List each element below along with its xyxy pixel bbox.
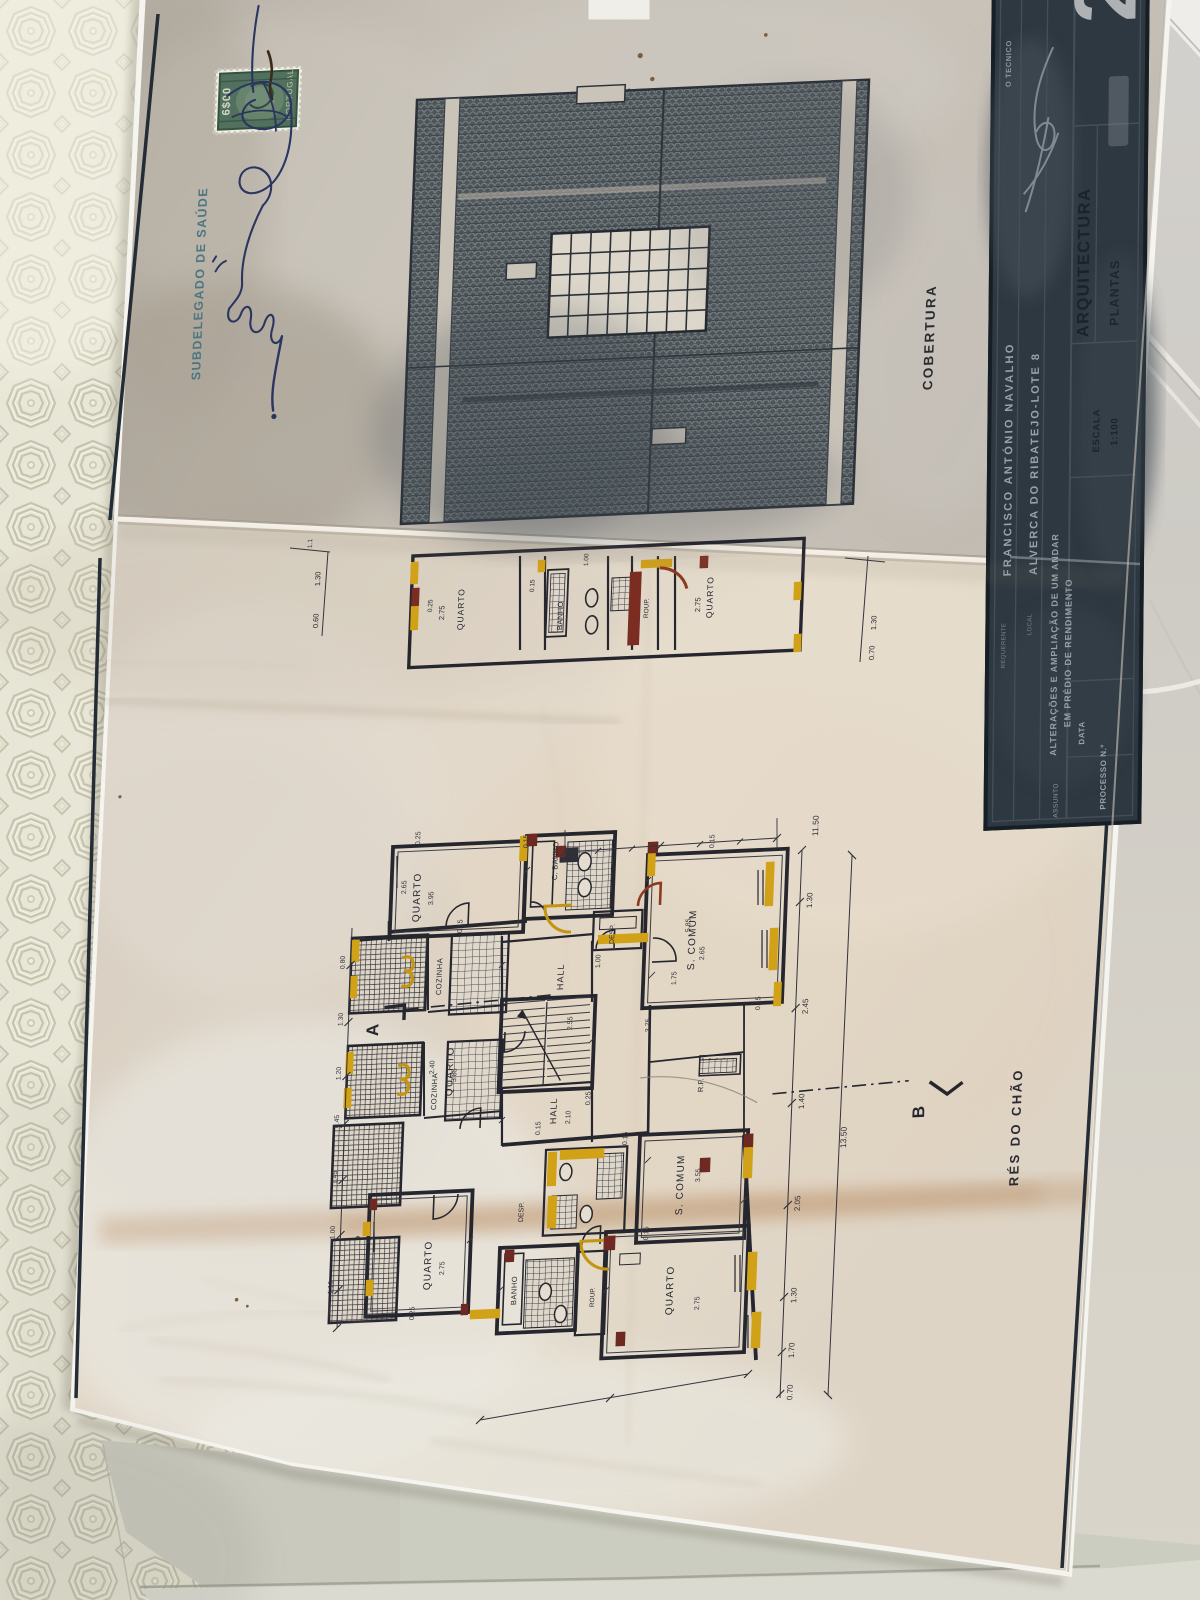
svg-text:COZINHA: COZINHA bbox=[434, 958, 444, 996]
svg-text:1.75: 1.75 bbox=[671, 971, 679, 985]
svg-text:3.75: 3.75 bbox=[645, 1018, 653, 1032]
svg-text:ASSUNTO: ASSUNTO bbox=[1052, 783, 1059, 818]
svg-text:1.40: 1.40 bbox=[797, 1093, 807, 1110]
svg-text:DESP.: DESP. bbox=[609, 924, 617, 944]
svg-text:0.15: 0.15 bbox=[529, 579, 536, 592]
svg-text:3.95: 3.95 bbox=[428, 891, 436, 905]
svg-text:1:100: 1:100 bbox=[1109, 417, 1120, 446]
svg-text:1.30: 1.30 bbox=[805, 892, 815, 909]
svg-text:2.10: 2.10 bbox=[565, 1110, 573, 1124]
svg-text:1.30: 1.30 bbox=[789, 1287, 799, 1304]
svg-text:0.15: 0.15 bbox=[709, 834, 717, 848]
svg-text:2.75: 2.75 bbox=[437, 605, 447, 620]
svg-text:2: 2 bbox=[1055, 0, 1154, 25]
svg-text:11.50: 11.50 bbox=[810, 815, 821, 836]
svg-text:1.30: 1.30 bbox=[869, 615, 879, 630]
svg-text:1.00: 1.00 bbox=[330, 1225, 338, 1239]
svg-text:3.55: 3.55 bbox=[695, 1168, 703, 1182]
svg-text:BANHO: BANHO bbox=[555, 601, 565, 631]
svg-text:DATA: DATA bbox=[1077, 721, 1086, 745]
svg-text:5.85: 5.85 bbox=[685, 918, 693, 932]
svg-text:1.00: 1.00 bbox=[595, 954, 603, 968]
svg-text:2.45: 2.45 bbox=[801, 998, 811, 1015]
svg-text:QUARTO: QUARTO bbox=[664, 1265, 677, 1315]
svg-text:0.15: 0.15 bbox=[622, 1131, 630, 1145]
svg-text:ARQUITECTURA: ARQUITECTURA bbox=[1074, 187, 1094, 338]
svg-text:0.70: 0.70 bbox=[785, 1384, 795, 1401]
svg-text:A: A bbox=[363, 1024, 382, 1037]
svg-text:FRANCISCO ANTÓNIO NAVALHO: FRANCISCO ANTÓNIO NAVALHO bbox=[1001, 342, 1016, 577]
svg-text:0.15: 0.15 bbox=[643, 1226, 651, 1240]
svg-text:2.05: 2.05 bbox=[793, 1195, 803, 1212]
svg-text:0.15: 0.15 bbox=[457, 919, 465, 933]
svg-text:0.45: 0.45 bbox=[334, 1114, 342, 1128]
svg-text:HALL: HALL bbox=[555, 963, 566, 990]
svg-text:ROUP.: ROUP. bbox=[589, 1287, 597, 1307]
svg-text:C. BANHO: C. BANHO bbox=[550, 841, 560, 880]
svg-text:13.50: 13.50 bbox=[838, 1126, 849, 1148]
svg-text:ESCALA: ESCALA bbox=[1091, 408, 1102, 452]
svg-text:0.25: 0.25 bbox=[415, 831, 423, 845]
svg-text:0.15: 0.15 bbox=[523, 834, 531, 848]
svg-text:1.20: 1.20 bbox=[335, 1066, 343, 1080]
svg-text:QUARTO: QUARTO bbox=[411, 872, 424, 922]
svg-text:BANHO: BANHO bbox=[509, 1276, 519, 1306]
svg-text:QUARTO: QUARTO bbox=[422, 1240, 435, 1290]
svg-text:0.25: 0.25 bbox=[427, 599, 434, 612]
svg-text:6$00: 6$00 bbox=[220, 87, 233, 116]
svg-text:1.30: 1.30 bbox=[338, 1012, 346, 1026]
svg-text:ROUP.: ROUP. bbox=[643, 598, 651, 618]
svg-text:REQUERENTE: REQUERENTE bbox=[1001, 623, 1007, 669]
svg-text:PLANTAS: PLANTAS bbox=[1107, 259, 1122, 326]
svg-text:S. COMUM: S. COMUM bbox=[686, 909, 699, 970]
svg-text:1.45: 1.45 bbox=[332, 1170, 340, 1184]
svg-text:1.10: 1.10 bbox=[327, 1280, 335, 1294]
svg-text:3.85: 3.85 bbox=[451, 1068, 459, 1082]
svg-text:2.40: 2.40 bbox=[429, 1060, 437, 1074]
svg-text:2.75: 2.75 bbox=[694, 1296, 702, 1310]
svg-text:QUARTO: QUARTO bbox=[455, 588, 467, 630]
svg-text:0.15: 0.15 bbox=[755, 996, 763, 1010]
svg-text:DESP.: DESP. bbox=[518, 1202, 526, 1222]
svg-text:0.25: 0.25 bbox=[409, 1306, 417, 1320]
svg-text:0.60: 0.60 bbox=[311, 613, 321, 628]
svg-text:B: B bbox=[909, 1106, 928, 1119]
svg-text:0.15: 0.15 bbox=[535, 1121, 543, 1135]
svg-text:1.70: 1.70 bbox=[787, 1342, 797, 1359]
svg-text:O TECNICO: O TECNICO bbox=[1004, 40, 1013, 87]
svg-text:S. COMUM: S. COMUM bbox=[674, 1154, 687, 1215]
svg-text:2.75: 2.75 bbox=[693, 597, 703, 612]
svg-text:PROCESSO N.º: PROCESSO N.º bbox=[1099, 744, 1109, 810]
svg-text:EM PRÉDIO DE RENDIMENTO: EM PRÉDIO DE RENDIMENTO bbox=[1061, 578, 1073, 727]
svg-text:2.55: 2.55 bbox=[567, 1016, 575, 1030]
svg-text:0.70: 0.70 bbox=[867, 645, 877, 660]
svg-text:1.30: 1.30 bbox=[313, 571, 323, 586]
svg-text:2.75: 2.75 bbox=[439, 1261, 447, 1275]
svg-text:2.65: 2.65 bbox=[401, 880, 409, 894]
svg-text:LOCAL: LOCAL bbox=[1027, 613, 1033, 635]
svg-text:ALVERCA DO RIBATEJO-LOTE 8: ALVERCA DO RIBATEJO-LOTE 8 bbox=[1028, 352, 1042, 576]
svg-text:0.25: 0.25 bbox=[585, 1091, 593, 1105]
svg-text:HALL: HALL bbox=[548, 1097, 559, 1124]
svg-text:QUARTO: QUARTO bbox=[704, 576, 716, 618]
svg-text:COZINHA: COZINHA bbox=[429, 1073, 439, 1111]
svg-text:2.65: 2.65 bbox=[699, 946, 707, 960]
svg-text:0.80: 0.80 bbox=[340, 955, 348, 969]
